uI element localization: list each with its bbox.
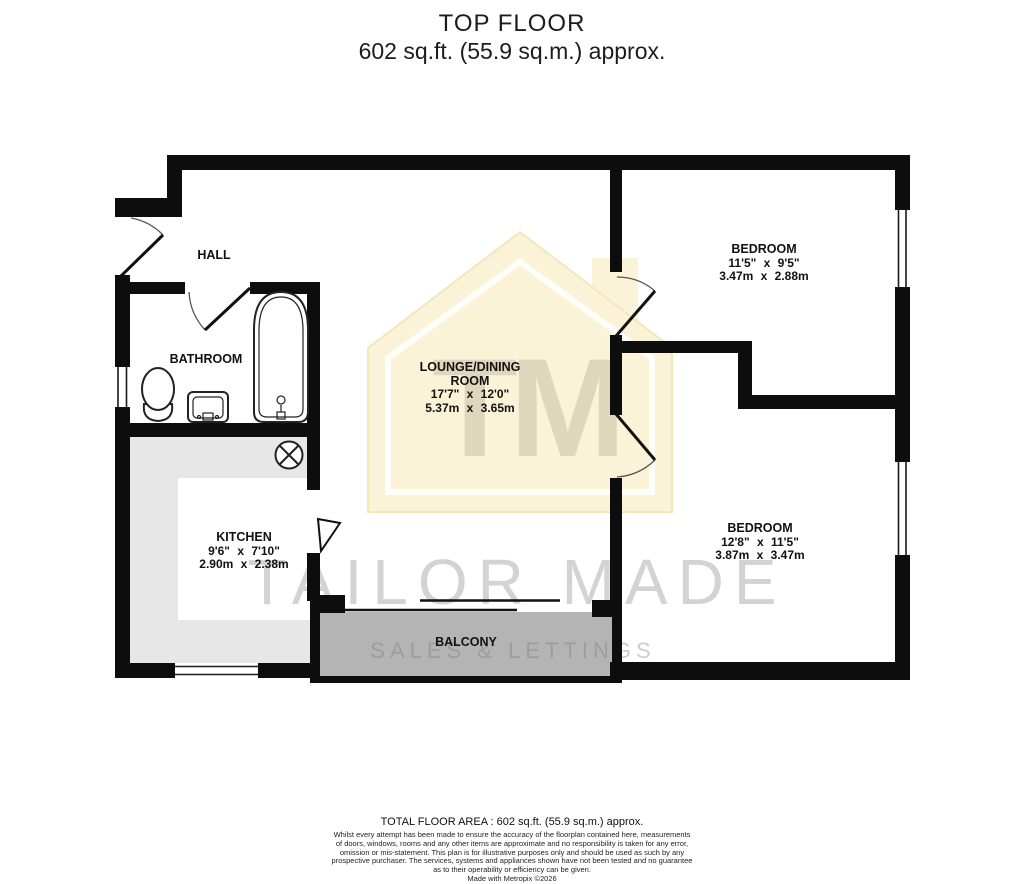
wall-balcony-corner-right — [592, 600, 622, 617]
wall-entry-step-horizontal — [115, 198, 182, 217]
balcony-sliding-door — [345, 601, 560, 611]
wall-balcony-left — [310, 613, 320, 683]
wall-bathroom-top-left — [115, 282, 185, 294]
bathroom-window — [115, 367, 130, 407]
wall-bedroom-divider-left — [616, 341, 750, 353]
hob — [276, 442, 303, 469]
disclaimer: Whilst every attempt has been made to en… — [0, 831, 1024, 884]
floorplan-structure — [0, 0, 1024, 884]
lounge-label: LOUNGE/DINING ROOM 17'7" x 12'0" 5.37m x… — [420, 361, 521, 415]
sink-vanity — [188, 392, 228, 422]
bedroom2-door — [616, 414, 655, 477]
wall-kitchen-right-upper — [307, 437, 320, 490]
kitchen-label: KITCHEN 9'6" x 7'10" 2.90m x 2.38m — [199, 531, 288, 572]
bedroom1-window — [895, 210, 910, 287]
wall-balcony-corner-left — [310, 595, 345, 613]
wall-bedroom-divider-vertical — [738, 341, 752, 409]
bathtub — [254, 292, 308, 422]
wall-central-lower — [610, 478, 622, 600]
wall-bedroom-divider-right — [750, 395, 895, 409]
entrance-door — [121, 218, 163, 276]
wall-balcony-right — [612, 617, 622, 683]
wall-right-top — [895, 170, 910, 210]
wall-bottom-bedroom2 — [610, 662, 910, 680]
bathroom-label: BATHROOM — [170, 353, 243, 367]
fixtures — [142, 292, 308, 469]
wall-balcony-bottom — [310, 676, 622, 683]
wall-kitchen-top — [115, 423, 320, 437]
bedroom2-window — [895, 462, 910, 555]
metropix-credit: Made with Metropix ©2026 — [0, 875, 1024, 884]
bedroom1-label: BEDROOM 11'5" x 9'5" 3.47m x 2.88m — [719, 243, 808, 284]
toilet — [142, 368, 174, 421]
wall-right-middle — [895, 287, 910, 462]
wall-top — [167, 155, 910, 170]
bedroom2-label: BEDROOM 12'8" x 11'5" 3.87m x 3.47m — [715, 522, 804, 563]
hall-label: HALL — [197, 249, 230, 263]
bedroom1-door — [616, 277, 655, 336]
bathroom-door — [189, 288, 250, 330]
wall-right-bottom — [895, 555, 910, 680]
wall-central-upper — [610, 170, 622, 272]
kitchen-window — [175, 663, 258, 678]
kitchen-door-leaf — [318, 519, 340, 551]
wall-left-lower — [115, 407, 130, 678]
balcony-label: BALCONY — [435, 636, 497, 650]
walls — [115, 155, 910, 683]
wall-kitchen-right-lower — [307, 553, 320, 601]
floorplan-canvas: TM TAILOR MADE SALES & LETTINGS — [0, 0, 1024, 884]
plan-footer: TOTAL FLOOR AREA : 602 sq.ft. (55.9 sq.m… — [0, 816, 1024, 884]
total-floor-area: TOTAL FLOOR AREA : 602 sq.ft. (55.9 sq.m… — [0, 816, 1024, 828]
